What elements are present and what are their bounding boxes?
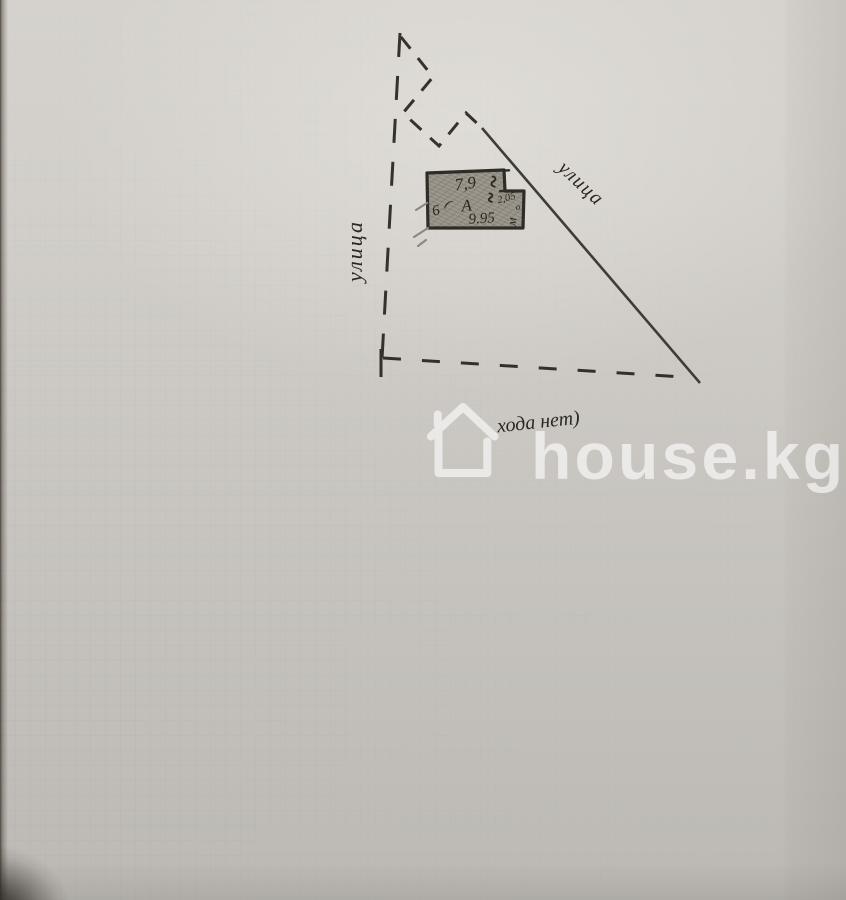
svg-text:о: о bbox=[516, 202, 521, 212]
svg-text:улица: улица bbox=[342, 220, 367, 284]
svg-text:9.95: 9.95 bbox=[468, 210, 496, 228]
svg-text:м: м bbox=[504, 217, 520, 228]
svg-text:7,9: 7,9 bbox=[453, 173, 477, 195]
svg-text:house.kg: house.kg bbox=[531, 419, 846, 493]
